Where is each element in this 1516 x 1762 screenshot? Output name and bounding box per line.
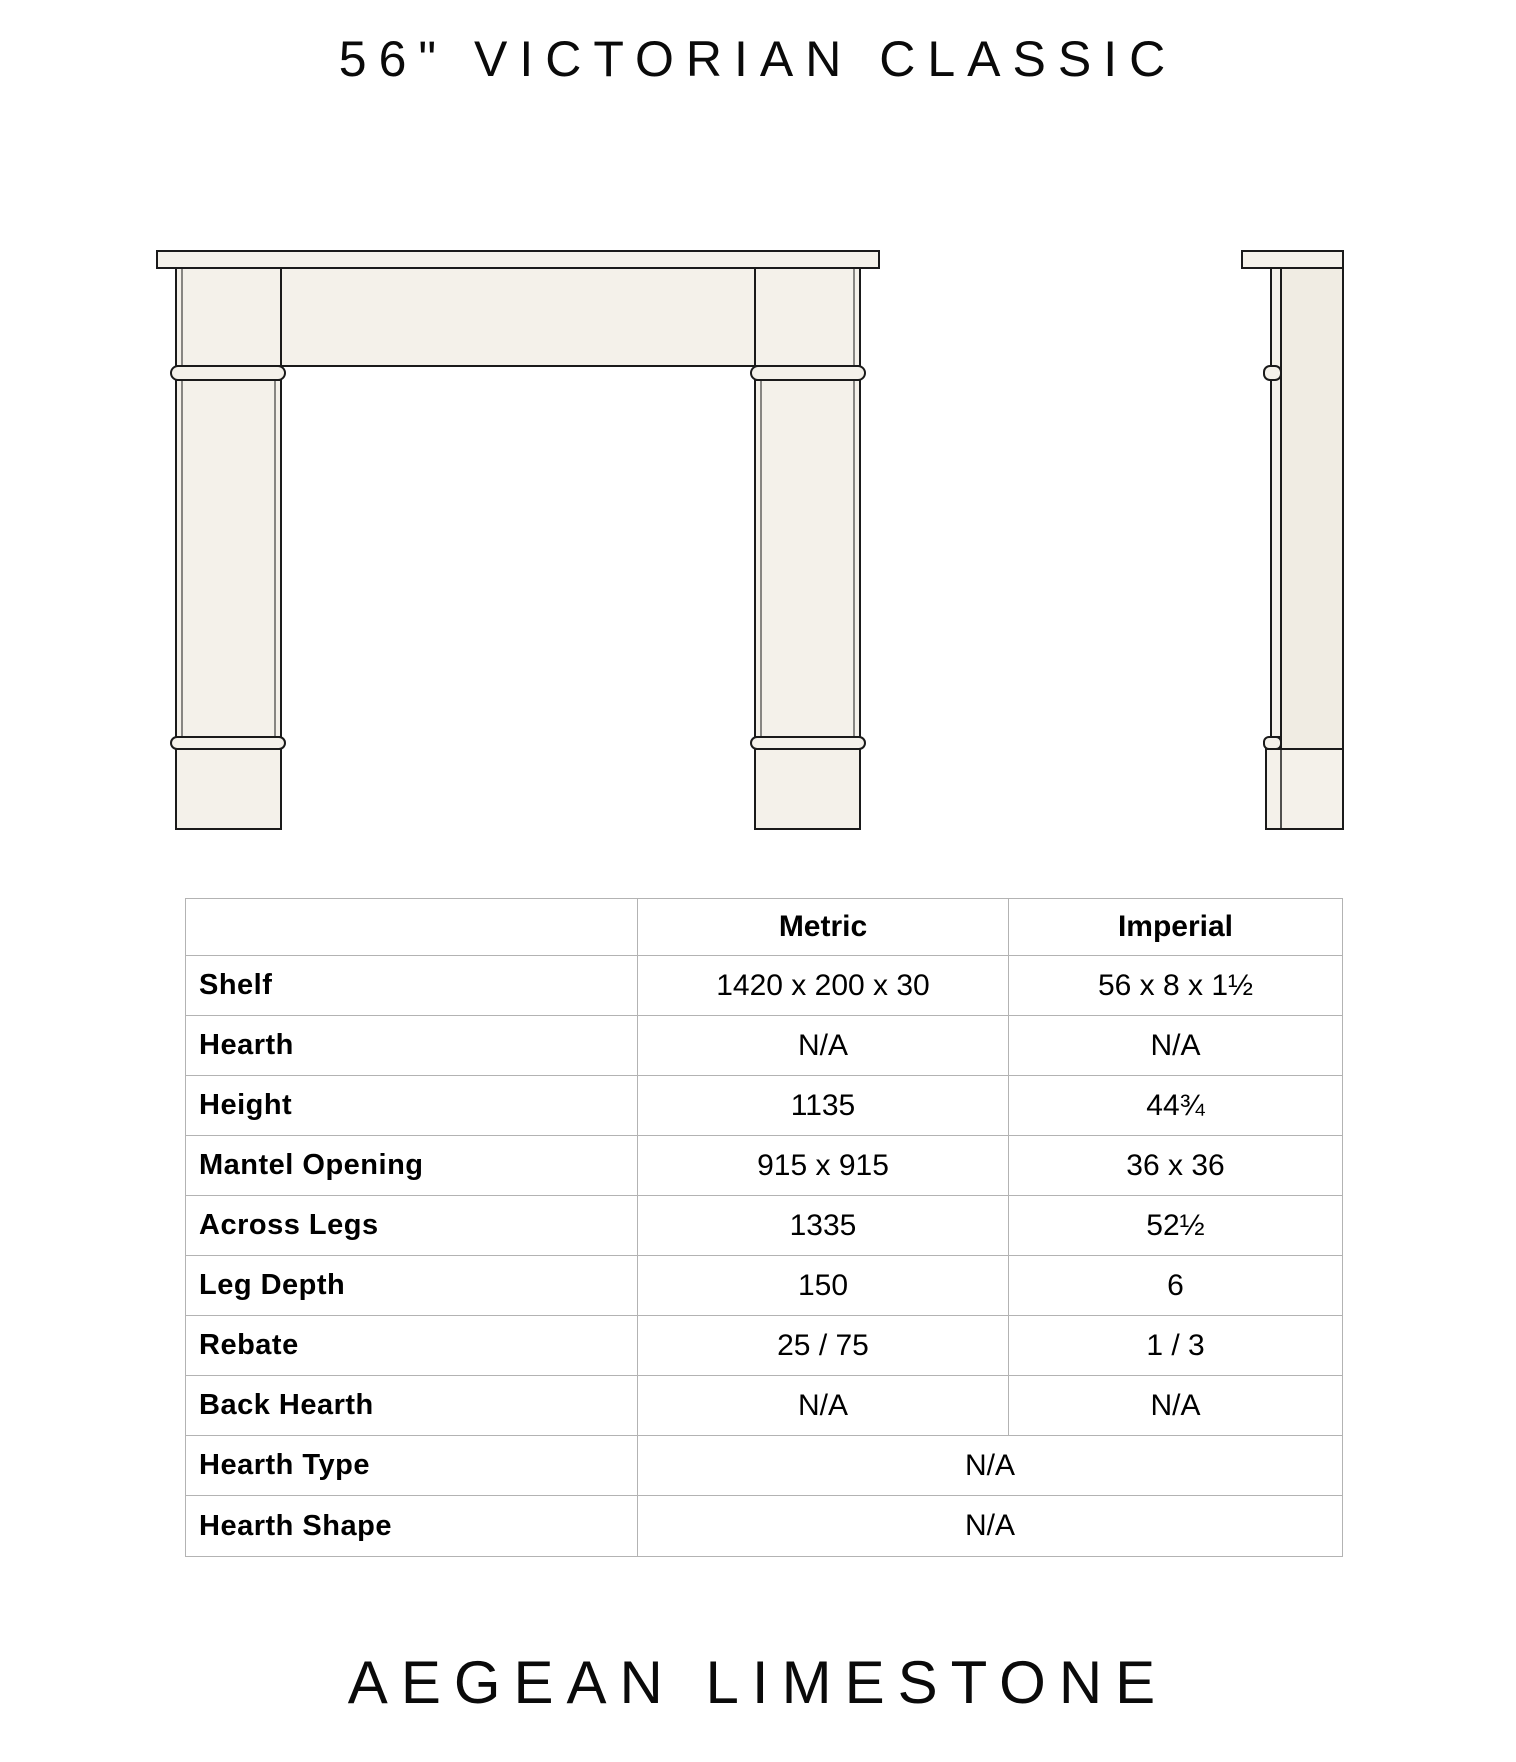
row-label: Hearth (186, 1016, 638, 1075)
front-frieze (281, 268, 755, 366)
side-plinth (1266, 749, 1343, 829)
header-empty-cell (186, 899, 638, 955)
table-row-hearth-type: Hearth Type N/A (186, 1436, 1342, 1496)
spec-sheet-page: 56" VICTORIAN CLASSIC (0, 0, 1516, 1762)
metric-value: 915 x 915 (638, 1136, 1009, 1195)
imperial-value: N/A (1009, 1376, 1342, 1435)
metric-value: 25 / 75 (638, 1316, 1009, 1375)
side-front-strip (1271, 268, 1281, 737)
row-label: Mantel Opening (186, 1136, 638, 1195)
side-capital-bump (1264, 366, 1281, 380)
metric-value: N/A (638, 1016, 1009, 1075)
row-label: Back Hearth (186, 1376, 638, 1435)
table-row-hearth: Hearth N/A N/A (186, 1016, 1342, 1076)
front-left-upper-block (176, 268, 281, 366)
front-left-plinth (176, 749, 281, 829)
front-view (157, 251, 879, 829)
table-row-across-legs: Across Legs 1335 52½ (186, 1196, 1342, 1256)
table-row-height: Height 1135 44¾ (186, 1076, 1342, 1136)
table-header-row: Metric Imperial (186, 899, 1342, 956)
imperial-value: 56 x 8 x 1½ (1009, 956, 1342, 1015)
metric-value: N/A (638, 1376, 1009, 1435)
row-label: Leg Depth (186, 1256, 638, 1315)
row-label: Rebate (186, 1316, 638, 1375)
row-label: Shelf (186, 956, 638, 1015)
imperial-value: 6 (1009, 1256, 1342, 1315)
row-label: Height (186, 1076, 638, 1135)
col-header-imperial: Imperial (1009, 899, 1342, 955)
mantel-drawings (0, 0, 1516, 880)
front-shelf (157, 251, 879, 268)
imperial-value: 44¾ (1009, 1076, 1342, 1135)
row-label: Across Legs (186, 1196, 638, 1255)
front-left-foot-band (171, 737, 285, 749)
col-header-metric: Metric (638, 899, 1009, 955)
metric-value: 1420 x 200 x 30 (638, 956, 1009, 1015)
merged-value: N/A (638, 1496, 1342, 1556)
table-row-shelf: Shelf 1420 x 200 x 30 56 x 8 x 1½ (186, 956, 1342, 1016)
table-row-hearth-shape: Hearth Shape N/A (186, 1496, 1342, 1556)
imperial-value: 1 / 3 (1009, 1316, 1342, 1375)
front-right-upper-block (755, 268, 860, 366)
table-row-mantel-opening: Mantel Opening 915 x 915 36 x 36 (186, 1136, 1342, 1196)
side-view (1242, 251, 1343, 829)
front-left-capital (171, 366, 285, 380)
merged-value: N/A (638, 1436, 1342, 1495)
imperial-value: 52½ (1009, 1196, 1342, 1255)
front-left-leg-shaft (176, 380, 281, 737)
material-name: AEGEAN LIMESTONE (0, 1648, 1516, 1717)
metric-value: 1335 (638, 1196, 1009, 1255)
front-right-capital (751, 366, 865, 380)
table-row-back-hearth: Back Hearth N/A N/A (186, 1376, 1342, 1436)
imperial-value: N/A (1009, 1016, 1342, 1075)
front-right-foot-band (751, 737, 865, 749)
front-right-plinth (755, 749, 860, 829)
table-row-rebate: Rebate 25 / 75 1 / 3 (186, 1316, 1342, 1376)
metric-value: 150 (638, 1256, 1009, 1315)
side-shelf (1242, 251, 1343, 268)
side-slab (1281, 268, 1343, 829)
table-row-leg-depth: Leg Depth 150 6 (186, 1256, 1342, 1316)
front-right-leg-shaft (755, 380, 860, 737)
spec-table: Metric Imperial Shelf 1420 x 200 x 30 56… (185, 898, 1343, 1557)
side-foot-bump (1264, 737, 1281, 749)
metric-value: 1135 (638, 1076, 1009, 1135)
imperial-value: 36 x 36 (1009, 1136, 1342, 1195)
row-label: Hearth Type (186, 1436, 638, 1495)
row-label: Hearth Shape (186, 1496, 638, 1556)
